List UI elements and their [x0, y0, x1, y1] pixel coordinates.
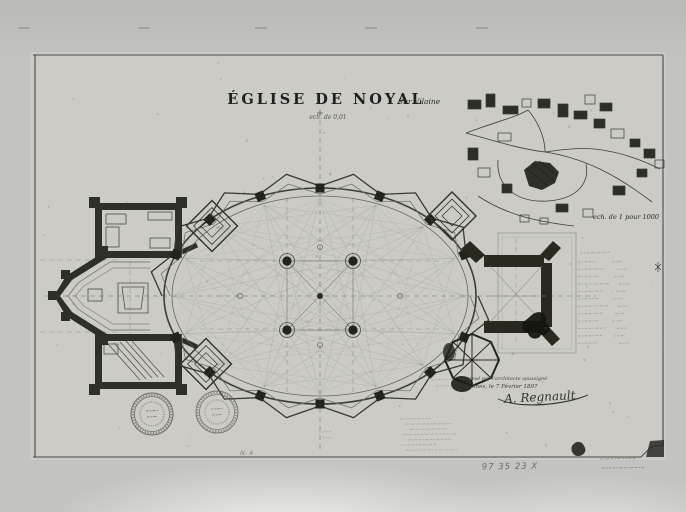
site-map-caption: ech. de 1 pour 1000: [593, 213, 659, 221]
signature-line1: Dressé par l'architecte soussigné: [462, 375, 547, 382]
pencil-number: N. 4: [240, 449, 253, 457]
archival-photograph: ÉGLISE DE NOYAL Sur Vilaine ech. de 0,01: [0, 0, 686, 512]
signature-line2: Rennes, le 7 Février 1897: [463, 383, 538, 390]
church-plan-drawing: ÉGLISE DE NOYAL Sur Vilaine ech. de 0,01: [0, 0, 686, 512]
inventory-number: 97 35 23 X: [482, 462, 539, 473]
drawing-title-suffix: Sur Vilaine: [398, 97, 441, 106]
scale-note: ech. de 0,01: [309, 114, 346, 121]
drawing-title: ÉGLISE DE NOYAL: [227, 90, 424, 108]
